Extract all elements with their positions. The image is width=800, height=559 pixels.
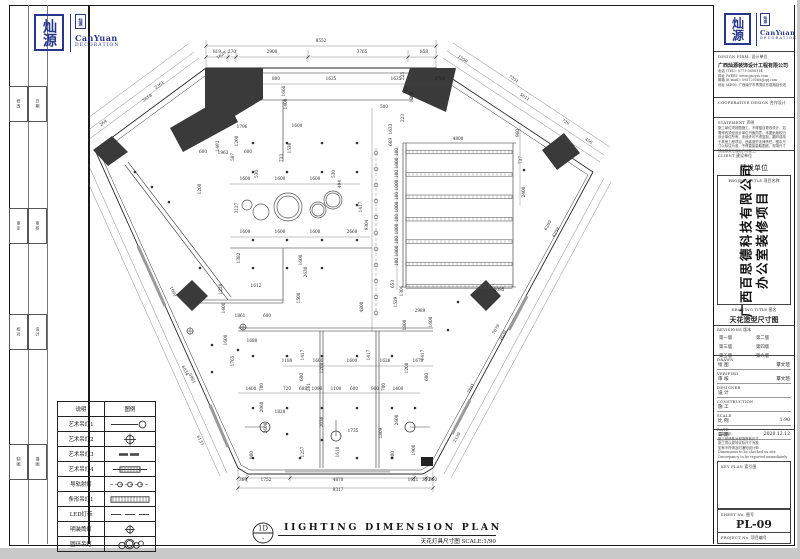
key-plan-label: KEY PLAN 索引图 xyxy=(721,464,790,470)
legend-table: 说明图例艺术吊灯1艺术吊灯2艺术吊灯3艺术吊灯4导轨射灯条形吊灯1LED灯带明装… xyxy=(57,401,156,552)
caption-rule xyxy=(278,535,496,536)
dimension-label: 1765 xyxy=(230,355,235,366)
ring-pendant-icon xyxy=(242,200,252,210)
dimension-label: 1600 xyxy=(292,123,303,128)
info-row: SCALE比 例1:90 xyxy=(717,412,791,426)
dimension-label: 1618 xyxy=(335,446,340,457)
dimension-line xyxy=(444,178,604,474)
dimension-label: 1600 xyxy=(347,358,358,363)
dimension-label: 385 xyxy=(403,86,408,94)
dimension-label: 1800 xyxy=(402,319,407,330)
dimension-label: 8552 xyxy=(316,38,327,43)
column-wedge xyxy=(93,136,128,166)
downlight-icon xyxy=(447,329,450,332)
dimension-label: 1417 xyxy=(420,349,425,360)
legend-label: 圆环吊灯 xyxy=(58,537,105,551)
downlight-icon xyxy=(211,344,214,347)
legend-row: LED灯带 xyxy=(58,506,155,521)
legend-label: 艺术吊灯4 xyxy=(58,462,105,476)
downlight-icon xyxy=(391,355,394,358)
dimension-label: 1000 xyxy=(394,223,399,234)
margin-cell: 日期 xyxy=(28,86,47,122)
dimension-label: 3618 xyxy=(141,92,153,103)
downlight-icon xyxy=(252,239,255,242)
dimension-label: 900 xyxy=(249,451,254,459)
downlight-icon xyxy=(286,355,289,358)
margin-cell: 审定 xyxy=(9,208,28,244)
revision-cell: 第一版 xyxy=(717,333,754,342)
dimension-label: 1200 xyxy=(234,135,239,146)
legend-row: 艺术吊灯2 xyxy=(58,431,155,446)
logo-divider xyxy=(70,14,71,52)
firm-name: 广西灿源装饰设计工程有限公司 xyxy=(718,62,790,69)
dimension-label: 1096 xyxy=(312,386,323,391)
ring-pendant-icon xyxy=(326,193,340,207)
dimension-label: 1228 xyxy=(218,283,223,294)
dimension-label: 960 xyxy=(515,129,520,137)
dimension-label: 100 xyxy=(394,214,399,222)
dimension-label: 500 xyxy=(380,104,388,109)
project-no-label: PROJECT No. 项目编号 xyxy=(721,535,790,541)
wall-hatch-segment xyxy=(138,246,165,306)
dimension-label: 1633 xyxy=(388,123,393,134)
dimension-label: 1635 xyxy=(326,76,337,81)
legend-header-symbol: 图例 xyxy=(105,402,155,416)
dimension-label: 900 xyxy=(390,451,395,459)
legend-row: 艺术吊灯1 xyxy=(58,416,155,431)
tb-mini-seal: 灿源 xyxy=(760,13,770,26)
downlight-icon xyxy=(523,169,526,172)
legend-label: 艺术吊灯1 xyxy=(58,417,105,431)
sheet-no-box: SHEET No. 图号 PL-09 PROJECT No. 项目编号 xyxy=(717,509,791,544)
dimension-label: 3127 xyxy=(234,202,239,213)
project-title-box: PROJECT TITLE 项目名称 广西百思德科技有限公司 办公室装修项目 xyxy=(717,175,791,305)
dimension-label: 1000 xyxy=(394,157,399,168)
svg-text:-: - xyxy=(262,535,265,543)
dimension-label: 270 xyxy=(228,49,236,54)
dimension-label: 733 xyxy=(279,154,284,162)
dimension-label: 1550 xyxy=(457,54,469,64)
dimension-label: 9304 xyxy=(364,219,369,230)
dimension-line xyxy=(88,44,188,126)
downlight-icon xyxy=(356,239,359,242)
ceiling-plan-drawing: 8552819270290037658581629236136182641550… xyxy=(88,4,715,545)
dimension-label: 1000 xyxy=(394,245,399,256)
dimension-label: 1257 xyxy=(300,446,305,457)
rings-icon xyxy=(108,538,152,551)
dimension-label: 700 xyxy=(381,383,386,391)
legend-label: 艺术吊灯3 xyxy=(58,447,105,461)
dimension-label: 1306 xyxy=(399,285,404,296)
margin-cell: 审核 xyxy=(28,208,47,244)
dimension-label: 858 xyxy=(420,49,428,54)
dimension-label: 600 xyxy=(350,386,358,391)
info-row: VERIFIED审 核覃文瑄 xyxy=(717,370,791,384)
dimension-label: 1600 xyxy=(310,229,321,234)
dimension-label: 2036 xyxy=(319,416,324,427)
downlight-icon xyxy=(356,142,359,145)
margin-cell: 校对 xyxy=(9,314,28,350)
downlight-icon xyxy=(286,267,289,270)
downlight-icon xyxy=(356,355,359,358)
info-row: CONSTRUCTION施 工 xyxy=(717,398,791,412)
line-circle-icon xyxy=(108,418,152,431)
dimension-label: 600 xyxy=(244,149,252,154)
info-row: DESIGNER设 计 xyxy=(717,384,791,398)
plan-title: IIGHTING DIMENSION PLAN xyxy=(284,522,502,533)
project-name: 广西百思德科技有限公司 办公室装修项目 xyxy=(738,163,769,317)
dimension-label: 1600 xyxy=(275,229,286,234)
ring-pendant-icon xyxy=(253,204,269,220)
wall-hatch-segment xyxy=(452,400,470,434)
dimension-label: 1861 xyxy=(235,313,246,318)
dimension-label: 1600 xyxy=(240,229,251,234)
downlight-icon xyxy=(286,171,289,174)
dimension-label: 1766 xyxy=(435,76,446,81)
dimension-label: 223 xyxy=(400,114,405,122)
legend-row: 艺术吊灯4 xyxy=(58,461,155,476)
dimension-label: 1180 xyxy=(282,358,293,363)
revision-cell: 第二版 xyxy=(754,333,791,342)
svg-text:1D: 1D xyxy=(258,525,268,533)
dimension-label: 6269 xyxy=(543,219,553,231)
dimension-label: 1963 xyxy=(218,150,229,155)
dimension-label: 3095 xyxy=(494,287,505,292)
column-wedge xyxy=(176,280,208,311)
dimension-label: 9317 xyxy=(333,487,344,492)
dimension-label: 1621 xyxy=(408,477,419,482)
dimension-label: 600 xyxy=(299,373,304,381)
legend-row: 明装筒灯 xyxy=(58,521,155,536)
dimension-label: 1060 xyxy=(169,285,178,297)
downlight-icon xyxy=(211,371,214,374)
dimension-label: 530 xyxy=(331,170,336,178)
column-wedge xyxy=(402,68,456,112)
dimension-label: 1200 xyxy=(409,91,414,102)
tb-seal: 灿源 xyxy=(724,13,751,45)
dimension-label: 1600 xyxy=(313,358,324,363)
dimension-label: 2060 xyxy=(259,401,264,412)
legend-label: 条形吊灯1 xyxy=(58,492,105,506)
dimension-label: 7351 xyxy=(508,74,520,84)
dimension-label: 1530 xyxy=(287,142,292,153)
dashes-icon xyxy=(108,508,152,521)
dimension-label: 2989 xyxy=(415,308,426,313)
dimension-line xyxy=(451,182,611,478)
dimension-label: 1600 xyxy=(298,254,303,265)
ring-pendant-icon xyxy=(324,191,342,209)
margin-cell: 修改 xyxy=(9,86,28,122)
capsule-hatch-icon xyxy=(108,463,152,476)
dimension-label: 587 xyxy=(230,153,235,161)
linear-light-bar xyxy=(406,217,512,221)
legend-label: 明装筒灯 xyxy=(58,522,105,536)
detail-bubble-icon: 1D - xyxy=(250,520,276,546)
downlight-icon xyxy=(237,349,240,352)
dimension-label: 1000 xyxy=(394,201,399,212)
dimension-label: 1600 xyxy=(240,176,251,181)
ring-pendant-icon xyxy=(277,196,299,218)
dimension-label: 737 xyxy=(518,156,523,164)
dimension-label: 1680 xyxy=(247,338,258,343)
dimension-label: 700 xyxy=(259,383,264,391)
downlight-icon xyxy=(457,301,460,304)
margin-cell: 描图 xyxy=(28,444,47,480)
dimension-label: 1417 xyxy=(300,349,305,360)
downlight-icon xyxy=(286,433,289,436)
dimension-label: 2361 xyxy=(153,79,165,90)
dimension-label: 1400 xyxy=(393,386,404,391)
dash-circles-icon xyxy=(108,478,152,491)
downlight-icon xyxy=(414,407,417,410)
dimension-label: 450 xyxy=(584,136,594,145)
dimension-label: 4800 xyxy=(453,136,464,141)
dimension-label: 7679 xyxy=(491,323,501,335)
dimension-label: 653 xyxy=(390,280,395,288)
legend-label: 艺术吊灯2 xyxy=(58,432,105,446)
dimension-label: 2630 xyxy=(303,266,308,277)
dimension-label: 669 xyxy=(388,138,393,146)
dimension-label: 1828 xyxy=(275,409,286,414)
dimension-label: 600 xyxy=(263,313,271,318)
legend-row: 圆环吊灯 xyxy=(58,536,155,551)
dimension-label: 1417 xyxy=(366,349,371,360)
downlight-icon xyxy=(321,142,324,145)
dimension-label: 1900 xyxy=(411,444,416,455)
dimension-label: 1400 xyxy=(246,386,257,391)
dimension-label: 225 xyxy=(400,72,405,80)
tb-logo-divider xyxy=(756,13,757,46)
legend-row: 艺术吊灯3 xyxy=(58,446,155,461)
dimension-label: 4800 xyxy=(359,301,364,312)
downlight-icon xyxy=(199,267,202,270)
wall-hatch-segment xyxy=(210,405,228,447)
legend-row: 导轨射灯 xyxy=(58,476,155,491)
mini-seal: 灿源 xyxy=(75,14,86,29)
downlight-icon xyxy=(321,355,324,358)
dimension-label: 2900 xyxy=(267,49,278,54)
design-firm-label: DESIGN FIRM: 设计单位 xyxy=(718,54,790,60)
info-row: DRAWN绘 图覃文瑄 xyxy=(717,356,791,370)
title-block: 灿源 灿源 CanYuan DECORATION DESIGN FIRM: 设计… xyxy=(713,5,794,544)
margin-cell: 制图 xyxy=(9,444,28,480)
legend-label: LED灯带 xyxy=(58,507,105,521)
drawing-title: 天花造型尺寸图 xyxy=(718,315,790,325)
black-marker xyxy=(421,457,433,466)
dimension-label: 100 xyxy=(394,236,399,244)
revision-cell: 第四版 xyxy=(754,342,791,351)
sheet-number: PL-09 xyxy=(718,518,790,531)
dimension-label: 1600 xyxy=(310,176,321,181)
dimension-label: 720 xyxy=(561,117,571,126)
dimension-label: 3765 xyxy=(357,49,368,54)
linear-light-bar xyxy=(406,240,512,244)
key-plan-box: KEY PLAN 索引图 xyxy=(717,461,791,509)
downlight-icon xyxy=(134,171,137,174)
downlight-icon xyxy=(321,407,324,410)
dimension-label: 1796 xyxy=(237,124,248,129)
client-label: CLIENT 建设单位 xyxy=(718,153,790,159)
downlight-icon xyxy=(321,239,324,242)
dimension-label: 360 xyxy=(429,477,437,482)
dimension-label: 1752 xyxy=(261,477,272,482)
dimension-label: 1200 xyxy=(197,183,202,194)
downlight-icon xyxy=(356,171,359,174)
dimension-label: 600 xyxy=(424,373,429,381)
info-rows: DRAWN绘 图覃文瑄VERIFIED审 核覃文瑄DESIGNER设 计CONS… xyxy=(714,356,794,440)
dimension-label: 1735 xyxy=(348,428,359,433)
wall-line xyxy=(128,162,231,297)
legend-label: 导轨射灯 xyxy=(58,477,105,491)
cross-circle-icon xyxy=(108,433,152,446)
downlight-icon xyxy=(356,457,359,460)
dimension-label: 900 xyxy=(371,386,379,391)
dimension-label: 1382 xyxy=(236,252,241,263)
dimension-label: 2639 xyxy=(498,329,508,341)
dimension-label: 1666 xyxy=(281,85,286,96)
firm-contacts: 电话 (TEL): 0771-5606114网址 (WEB): www.gxcy… xyxy=(718,69,790,87)
dimension-label: 100 xyxy=(394,170,399,178)
dimension-label: 800 xyxy=(272,76,280,81)
dash-thick-icon xyxy=(108,448,152,461)
downlight-icon xyxy=(391,407,394,410)
ring-pendant-icon xyxy=(274,193,302,221)
dimension-label: 720 xyxy=(283,386,291,391)
revision-cell: 第三版 xyxy=(717,342,754,351)
downlight-icon xyxy=(252,355,255,358)
ring-pendant-icon xyxy=(312,204,324,216)
dimension-label: 1600 xyxy=(428,316,433,327)
downlight-icon xyxy=(252,267,255,270)
circle-plus-icon xyxy=(108,523,152,536)
dimension-label: 530 xyxy=(254,170,259,178)
dimension-label: 100 xyxy=(394,148,399,156)
tb-wordmark: CanYuan DECORATION xyxy=(760,30,800,41)
led-strip xyxy=(285,469,390,473)
linear-light-bar xyxy=(406,150,512,154)
dimension-line xyxy=(447,51,604,155)
dimension-label: 1600 xyxy=(223,334,228,345)
ring-pendant-icon xyxy=(310,202,326,218)
dimension-label: 1612 xyxy=(251,283,262,288)
dimension-label: 600 xyxy=(199,149,207,154)
notes-text: 温馨提示:施工前请核对现场所有尺寸施工须以现场实际尺寸为准如有不符请及时通知设计… xyxy=(718,432,790,460)
downlight-icon xyxy=(321,439,324,442)
bar-hatch-icon xyxy=(108,493,152,506)
linear-light-bar xyxy=(406,173,512,177)
wall-line xyxy=(125,165,228,300)
dimension-label: 1100 xyxy=(331,386,342,391)
dimension-label: 1600 xyxy=(275,176,286,181)
drawing-title-label: DRAWING TITLE 图名 xyxy=(718,307,790,313)
downlight-icon xyxy=(252,142,255,145)
column-wedge xyxy=(170,96,238,152)
strip-right-line xyxy=(47,5,48,544)
dimension-label: 100 xyxy=(394,258,399,266)
dimension-label: 4870 xyxy=(333,477,344,482)
legend-row: 条形吊灯1 xyxy=(58,491,155,506)
downlight-icon xyxy=(356,407,359,410)
dimension-label: 1417 xyxy=(358,201,363,212)
seal-text: 灿源 xyxy=(42,19,56,47)
dimension-label: 1529 xyxy=(393,296,398,307)
dimension-label: 360 xyxy=(239,477,247,482)
plan-subtitle: 天花灯具尺寸图 SCALE:1/90 xyxy=(278,537,496,545)
column-wedge xyxy=(542,133,580,170)
downlight-icon xyxy=(321,267,324,270)
downlight-icon xyxy=(151,186,154,189)
downlight-icon xyxy=(321,171,324,174)
dimension-label: 1400 xyxy=(221,302,226,313)
dimension-label: 1208 xyxy=(319,362,324,373)
dimension-label: 2660 xyxy=(347,229,358,234)
wall-hatch-segment xyxy=(509,296,527,330)
dimension-label: 2600 xyxy=(263,422,268,433)
dimension-label: 264 xyxy=(98,118,108,127)
dimension-label: 1208 xyxy=(404,362,409,373)
dimension-label: 1628 xyxy=(380,358,391,363)
dimension-label: 100 xyxy=(394,192,399,200)
canyuan-seal: 灿源 xyxy=(34,14,64,51)
dimension-label: 6137 xyxy=(196,434,205,446)
dimension-label: 2600 xyxy=(394,414,399,425)
downlight-icon xyxy=(286,407,289,410)
dimension-label: 261 xyxy=(306,383,311,391)
linear-light-bar xyxy=(406,195,512,199)
cooperative-label: COOPERATIVE DESIGN 合作设计 xyxy=(718,100,790,106)
legend-header-desc: 说明 xyxy=(58,402,105,416)
downlight-icon xyxy=(286,239,289,242)
dimension-label: 2400 xyxy=(521,186,526,197)
dimension-label: 1000 xyxy=(394,179,399,190)
dimension-label: 1500 xyxy=(296,292,301,303)
downlight-icon xyxy=(252,407,255,410)
dimension-line xyxy=(443,58,600,162)
dimension-label: 494 xyxy=(337,180,342,188)
margin-cell: 设计 xyxy=(28,314,47,350)
drawing-sheet: 修改日期审定审核校对设计制图描图 灿源 灿源 CanYuan DECORATIO… xyxy=(0,0,797,548)
linear-light-bar xyxy=(406,262,512,266)
downlight-icon xyxy=(168,201,171,204)
dimension-label: 1400 xyxy=(283,98,288,109)
dimension-label: 1809 xyxy=(378,427,383,438)
